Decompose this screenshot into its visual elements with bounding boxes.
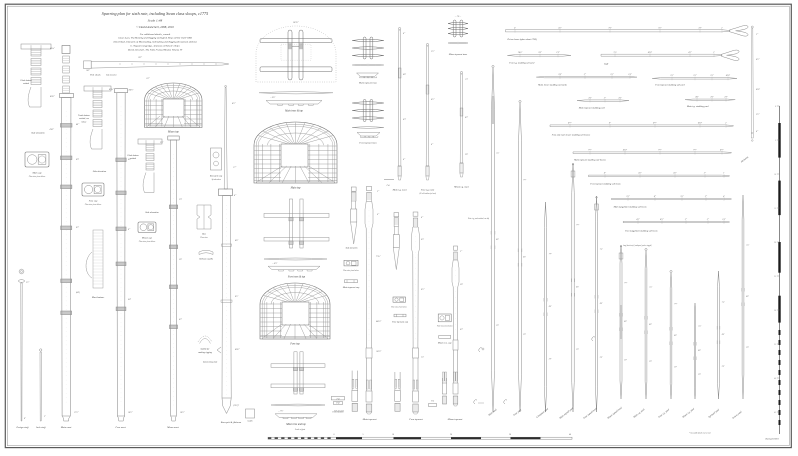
- svg-text:17'½″: 17'½″: [74, 411, 79, 414]
- svg-text:Fore mast: Fore mast: [114, 426, 125, 429]
- svg-text:7'½″: 7'½″: [722, 301, 725, 304]
- svg-text:30: 30: [774, 310, 776, 312]
- svg-text:6'4″: 6'4″: [128, 298, 131, 301]
- svg-text:7'½″: 7'½″: [549, 253, 552, 256]
- svg-text:Plan view from below: Plan view from below: [342, 269, 359, 272]
- svg-text:4'6″: 4'6″: [496, 238, 499, 241]
- svg-text:Main lower studding sail yards: Main lower studding sail yards: [537, 83, 567, 86]
- svg-text:0: 0: [334, 434, 335, 436]
- svg-text:Saddle for: Saddle for: [200, 348, 209, 351]
- svg-text:4'″: 4'″: [421, 216, 423, 219]
- svg-text:— 7'6″: — 7'6″: [277, 411, 283, 413]
- svg-text:(64'): (64'): [76, 291, 80, 294]
- svg-text:20: 20: [774, 242, 776, 244]
- svg-text:Plan view from below: Plan view from below: [436, 325, 453, 328]
- svg-text:James Lees, The Masting and Ri: James Lees, The Masting and Rigging of E…: [118, 37, 193, 40]
- svg-text:Fore trees & top: Fore trees & top: [287, 276, 306, 279]
- svg-text:4'6″: 4'6″: [235, 239, 238, 242]
- svg-text:Plan view from below: Plan view from below: [84, 203, 102, 206]
- svg-text:Main t.g. mast: Main t.g. mast: [392, 189, 407, 192]
- svg-text:Ensign staff: Ensign staff: [16, 426, 29, 429]
- svg-text:Main topmast studding sail boo: Main topmast studding sail booms: [573, 158, 606, 161]
- svg-text:4'3″: 4'3″: [403, 118, 406, 121]
- svg-text:Saddle: Saddle: [247, 421, 252, 423]
- svg-text:Trestle battens: Trestle battens: [78, 114, 90, 117]
- svg-text:Main topmast trees: Main topmast trees: [358, 82, 377, 85]
- svg-text:Main topmast studding yard: Main topmast studding yard: [578, 106, 606, 109]
- svg-text:Fore top: Fore top: [289, 343, 300, 346]
- svg-text:2'9″: 2'9″: [496, 325, 499, 327]
- svg-text:4'6¼″: 4'6¼″: [109, 88, 114, 91]
- svg-text:7'½″: 7'½″: [698, 325, 701, 328]
- svg-text:7'½″: 7'½″: [649, 286, 652, 289]
- svg-text:6'5″: 6'5″: [235, 296, 238, 298]
- svg-text:4'6″: 4'6″: [523, 256, 526, 259]
- svg-text:4'6″: 4'6″: [624, 320, 627, 323]
- svg-text:omitted; see: omitted; see: [79, 117, 89, 120]
- svg-text:Plan view: Plan view: [199, 237, 208, 239]
- svg-text:Main cap: Main cap: [31, 172, 42, 175]
- svg-text:C. Nepean Longridge, Anatomy o: C. Nepean Longridge, Anatomy of Nelson’s…: [130, 45, 179, 48]
- svg-text:Driver boom (after about 1790): Driver boom (after about 1790): [507, 38, 537, 41]
- svg-text:Revised 10/10: Revised 10/10: [765, 439, 780, 441]
- svg-text:Fid: Fid: [336, 399, 340, 401]
- svg-text:2'2″: 2'2″: [26, 282, 29, 284]
- svg-text:4'6″: 4'6″: [746, 295, 749, 298]
- svg-text:4'6″: 4'6″: [722, 333, 725, 336]
- svg-text:4'6″: 4'6″: [128, 158, 131, 161]
- svg-text:45: 45: [774, 412, 776, 414]
- svg-text:Scale of feet: Scale of feet: [295, 428, 306, 431]
- svg-text:10: 10: [774, 174, 776, 176]
- svg-text:4'6″: 4'6″: [600, 302, 603, 305]
- svg-text:2'9″: 2'9″: [576, 349, 579, 351]
- svg-text:Mizen top: Mizen top: [167, 131, 179, 134]
- svg-text:6″: 6″: [24, 418, 26, 420]
- svg-text:Fore and main lower studding s: Fore and main lower studding sail booms: [551, 133, 590, 136]
- svg-text:16'2½″: 16'2½″: [376, 350, 382, 353]
- svg-text:10'½″: 10'½″: [180, 411, 185, 414]
- svg-text:Main mast: Main mast: [60, 426, 72, 429]
- svg-text:4'½″: 4'½″: [232, 102, 236, 105]
- svg-text:1'3″: 1'3″: [465, 79, 468, 81]
- svg-text:4'6¼″: 4'6¼″: [129, 89, 134, 92]
- svg-text:7'½″: 7'½″: [674, 303, 677, 306]
- svg-text:35: 35: [774, 344, 776, 346]
- svg-text:4'″: 4'″: [403, 32, 405, 35]
- svg-text:3'½″: 3'½″: [756, 113, 760, 116]
- svg-text:8'½″: 8'½″: [421, 288, 425, 291]
- svg-text:5'6″: 5'6″: [179, 259, 182, 261]
- svg-text:4'″: 4'″: [431, 143, 433, 146]
- svg-text:Fore topmast studding sail yar: Fore topmast studding sail yard: [654, 83, 685, 86]
- svg-text:Fore t.g. studding sail yard: Fore t.g. studding sail yard: [508, 62, 535, 65]
- svg-text:5'6″: 5'6″: [460, 284, 463, 286]
- svg-text:2'9″: 2'9″: [624, 360, 627, 362]
- svg-text:2'9″: 2'9″: [523, 334, 526, 336]
- svg-text:25: 25: [774, 276, 776, 278]
- svg-text:4'½″: 4'½″: [431, 98, 435, 101]
- svg-text:Bowsprit & jibboom: Bowsprit & jibboom: [221, 421, 242, 424]
- svg-text:6'″: 6'″: [377, 214, 379, 216]
- svg-text:4'6½″: 4'6½″: [50, 95, 55, 98]
- svg-text:8'″: 8'″: [128, 229, 130, 231]
- svg-text:4'″: 4'″: [234, 194, 236, 197]
- svg-text:1'7″: 1'7″: [233, 167, 236, 169]
- svg-text:2'½″: 2'½″: [431, 50, 435, 53]
- svg-text:2'9″: 2'9″: [674, 367, 677, 369]
- svg-text:Mizen topmast: Mizen topmast: [447, 418, 463, 421]
- svg-text:4'6″: 4'6″: [549, 305, 552, 308]
- svg-text:4'½″: 4'½″: [756, 58, 760, 61]
- svg-text:40: 40: [774, 378, 776, 380]
- svg-text:4'6″: 4'6″: [649, 323, 652, 326]
- svg-text:Fore topmast: Fore topmast: [408, 418, 423, 421]
- svg-text:5: 5: [363, 434, 364, 436]
- svg-text:Aft elevation: Aft elevation: [210, 178, 221, 181]
- svg-text:4'6″: 4'6″: [698, 349, 701, 352]
- svg-text:3'½: 3'½: [614, 51, 617, 54]
- svg-text:3'″: 3'″: [460, 251, 462, 253]
- svg-text:below: below: [82, 121, 87, 123]
- svg-text:30: 30: [509, 434, 511, 436]
- svg-text:Fid: Fid: [430, 401, 434, 403]
- svg-text:Cheek battens: Cheek battens: [127, 154, 138, 157]
- svg-text:Mizen tree and top: Mizen tree and top: [285, 423, 306, 426]
- svg-text:6'5″: 6'5″: [421, 239, 424, 241]
- svg-text:6'2″: 6'2″: [460, 329, 463, 331]
- svg-text:For additional details, consul: For additional details, consult: [139, 33, 171, 36]
- svg-text:— 7'8 —: — 7'8 —: [454, 16, 462, 18]
- svg-text:Mizen topmast trees: Mizen topmast trees: [448, 53, 468, 56]
- svg-text:2″: 2″: [44, 416, 46, 418]
- svg-text:8'2″: 8'2″: [76, 227, 79, 229]
- svg-text:4'6″: 4'6″: [403, 73, 406, 76]
- svg-text:Fore cap: Fore cap: [88, 200, 98, 203]
- svg-text:Main t.g. studding yard: Main t.g. studding yard: [686, 105, 709, 108]
- svg-text:Main topmast: Main topmast: [362, 418, 377, 421]
- svg-text:Side elevation: Side elevation: [31, 132, 45, 135]
- svg-text:3'″: 3'″: [377, 191, 379, 193]
- svg-text:Mizen t.m. cap: Mizen t.m. cap: [437, 342, 452, 345]
- svg-text:— 9'6″: — 9'6″: [269, 97, 275, 99]
- svg-text:Bowsprit cap: Bowsprit cap: [210, 175, 223, 178]
- svg-text:20: 20: [450, 434, 452, 436]
- svg-text:4'6″: 4'6″: [576, 286, 579, 289]
- svg-text:David Antscherl, The Fully Fra: David Antscherl, The Fully Framed Model,…: [127, 48, 183, 51]
- svg-text:Main trees & top: Main trees & top: [284, 110, 303, 113]
- svg-text:7'½″: 7'½″: [746, 244, 749, 247]
- svg-text:Mizen t.g. mast: Mizen t.g. mast: [453, 186, 469, 189]
- svg-text:40: 40: [569, 434, 571, 436]
- svg-text:Fore topgallant studding sail: Fore topgallant studding sail boom: [624, 229, 658, 232]
- svg-text:7'½″: 7'½″: [523, 178, 526, 181]
- svg-text:Fore topmast trees: Fore topmast trees: [358, 142, 376, 145]
- svg-text:snaking rigging: snaking rigging: [198, 352, 213, 354]
- svg-text:2'9″: 2'9″: [649, 361, 652, 363]
- svg-text:7'3¼″: 7'3¼″: [376, 255, 381, 258]
- svg-text:4'″: 4'″: [756, 130, 758, 133]
- svg-text:19'2″: 19'2″: [138, 57, 142, 59]
- svg-text:Mizen cap: Mizen cap: [141, 237, 153, 240]
- svg-text:Note: t.g. yard omitted; see l: Note: t.g. yard omitted; see left: [467, 217, 490, 220]
- svg-text:Plan view from below: Plan view from below: [390, 306, 407, 309]
- svg-text:4'2″: 4'2″: [179, 318, 182, 321]
- svg-text:Cheek battens: Cheek battens: [20, 79, 31, 82]
- svg-text:10'″: 10'″: [146, 78, 149, 80]
- svg-text:Fid: Fid: [386, 185, 390, 187]
- svg-text:Side elevation: Side elevation: [93, 170, 107, 173]
- svg-text:Scale 1:48: Scale 1:48: [148, 19, 163, 23]
- svg-text:Fore t.g. mast: Fore t.g. mast: [420, 189, 435, 192]
- svg-text:* See saddle details over at r: * See saddle details over at rear: [689, 432, 711, 435]
- svg-text:(1'9½)″: (1'9½)″: [233, 404, 239, 407]
- svg-text:omitted: omitted: [23, 82, 29, 85]
- svg-text:44'5½″: 44'5½″: [376, 320, 382, 323]
- svg-text:4'2″: 4'2″: [465, 116, 468, 119]
- svg-text:40'″: 40'″: [76, 123, 79, 126]
- svg-text:3'6″: 3'6″: [465, 154, 468, 156]
- svg-text:7'½″: 7'½″: [624, 282, 627, 285]
- svg-text:David Steel, Elements of Mastm: David Steel, Elements of Mastmaking, Sai…: [113, 41, 197, 44]
- svg-text:2'9″: 2'9″: [549, 359, 552, 361]
- svg-text:Main topmast cap: Main topmast cap: [342, 286, 360, 289]
- svg-text:Fore topmast cap: Fore topmast cap: [391, 321, 409, 324]
- svg-text:4'″: 4'″: [403, 158, 405, 161]
- svg-text:4'6¾″: 4'6¾″: [50, 47, 55, 50]
- svg-text:2'9″: 2'9″: [600, 357, 603, 359]
- svg-text:2'9″: 2'9″: [722, 366, 725, 368]
- svg-text:7'½″: 7'½″: [496, 152, 499, 155]
- svg-text:16'½″: 16'½″: [128, 411, 133, 414]
- svg-text:Side elevation: Side elevation: [106, 74, 117, 77]
- svg-text:Jibboom saddle: Jibboom saddle: [199, 259, 213, 261]
- svg-text:Mast battens: Mast battens: [91, 296, 104, 299]
- svg-text:7'½″: 7'½″: [576, 223, 579, 226]
- svg-text:2'9″: 2'9″: [746, 347, 749, 349]
- svg-text:Bee: Bee: [202, 234, 205, 236]
- svg-text:Jack staff: Jack staff: [36, 426, 46, 429]
- svg-text:Side elevation: Side elevation: [145, 211, 159, 214]
- svg-text:Fore topmast studding sail boo: Fore topmast studding sail boom: [589, 182, 621, 185]
- svg-text:Plan view from below: Plan view from below: [28, 175, 46, 178]
- svg-text:Gaff: Gaff: [604, 62, 608, 65]
- svg-text:Mizen mast: Mizen mast: [166, 426, 179, 429]
- svg-text:3'9″: 3'9″: [179, 199, 182, 201]
- svg-text:7'½″: 7'½″: [600, 248, 603, 251]
- svg-text:7'2″: 7'2″: [421, 357, 424, 359]
- svg-text:2'″: 2'″: [756, 34, 758, 36]
- svg-text:— 8'9″: — 8'9″: [271, 263, 277, 265]
- svg-text:Main top: Main top: [290, 187, 301, 190]
- svg-text:4'6½″: 4'6½″: [235, 348, 240, 351]
- svg-text:4'6½″: 4'6½″: [49, 128, 54, 131]
- svg-text:4'6″: 4'6″: [674, 334, 677, 337]
- svg-text:4'10″: 4'10″: [756, 88, 760, 91]
- svg-text:2'9″: 2'9″: [698, 374, 701, 376]
- svg-text:Fish chock: Fish chock: [89, 74, 101, 77]
- svg-text:Side elevation: Side elevation: [346, 246, 358, 249]
- svg-text:15: 15: [774, 208, 776, 210]
- svg-text:Main topgallant studding sail: Main topgallant studding sail boom: [613, 205, 647, 208]
- svg-text:3'6″: 3'6″: [160, 142, 164, 144]
- svg-text:Gammoning cleat: Gammoning cleat: [203, 361, 218, 364]
- svg-text:Plan view from below: Plan view from below: [138, 240, 156, 243]
- svg-text:10: 10: [392, 434, 394, 436]
- svg-text:Side elevation: Side elevation: [334, 410, 344, 413]
- svg-text:16'5″: 16'5″: [86, 70, 90, 72]
- svg-text:28'2½″: 28'2½″: [293, 21, 299, 24]
- svg-text:4'9″: 4'9″: [76, 158, 79, 161]
